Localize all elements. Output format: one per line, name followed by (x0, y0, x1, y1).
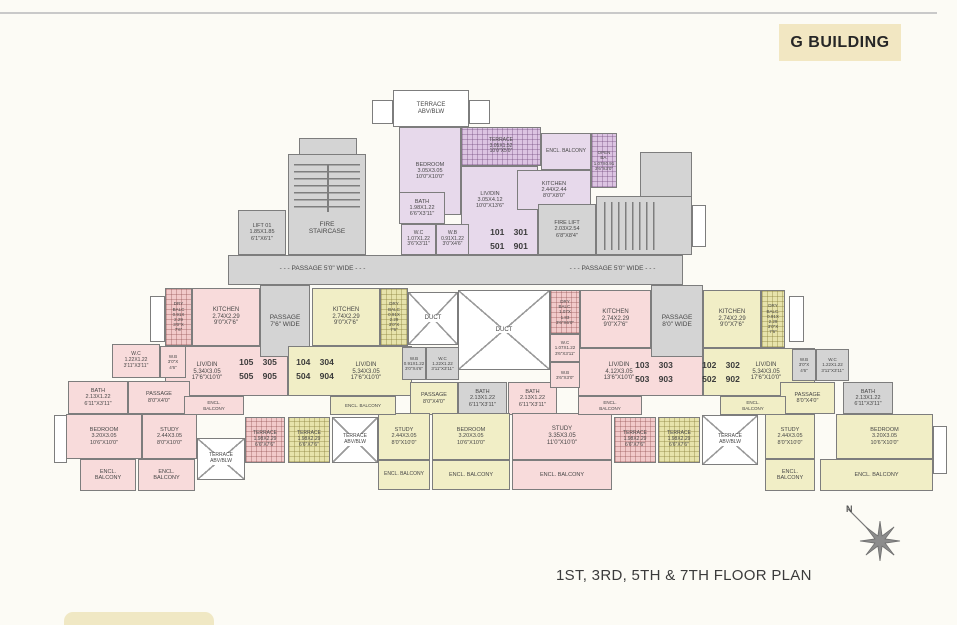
room-label-line: KITCHEN (602, 309, 628, 316)
encl-balcony-104a: ENCL. BALCONY (378, 460, 430, 490)
room-label-line: 17'6"X10'0" (351, 375, 382, 382)
encl-balcony-105-liv: ENCL.BALCONY (184, 396, 244, 415)
ledge-far-left (54, 415, 67, 463)
room-label-line: 8'0"X8'0" (543, 193, 565, 199)
room-label-line: 8'0"X4'0" (148, 398, 170, 404)
room-label-line: KITCHEN (213, 307, 239, 314)
bath-105: BATH2.13X1.226'11"X3'11" (68, 381, 128, 414)
room-label-line: DUCT (424, 315, 443, 322)
room-label-line: 9'0"X7'6" (334, 320, 358, 327)
terrace-102: TERRACE1.98X2.296'6"X7'6" (658, 417, 700, 463)
room-label-line: 3'6"X3'0" (556, 375, 574, 380)
lift-01: LIFT 011.85X1.856'1"X6'1" (238, 210, 286, 255)
fire-lift: FIRE LIFT2.03X2.546'8"X8'4" (538, 204, 596, 255)
room-label-line: 6'6"X7'6" (625, 443, 645, 449)
wc-103: W.C1.07X1.223'6"X3'11" (550, 334, 580, 362)
passage-104: PASSAGE8'0"X4'0" (410, 382, 458, 415)
bedroom-102: BEDROOM3.20X3.0510'6"X10'0" (836, 414, 933, 459)
stair-right-steps (604, 202, 658, 250)
room-label-line: 501 901 (490, 240, 528, 254)
room-label-line: TERRACE (417, 102, 446, 109)
room-label-line: - - - PASSAGE 5'0" WIDE - - - (570, 265, 656, 272)
passage-label-right: - - - PASSAGE 5'0" WIDE - - - (540, 259, 685, 279)
room-label-line: ENCL. BALCONY (345, 403, 381, 408)
dry-balcony-104: DRYBALC0.91X2.293'0"X7'6" (380, 288, 408, 346)
encl-balcony-102b: ENCL. BALCONY (820, 459, 933, 491)
room-label-line: 5.34X3.05 (193, 369, 220, 376)
encl-balcony-105a: ENCL.BALCONY (80, 459, 136, 491)
room-label-line: 2.74X2.29 (332, 314, 359, 321)
room-label-line: BALCONY (203, 406, 225, 411)
bottom-left-decorative-shape (64, 612, 214, 625)
kitchen-104: KITCHEN2.74X2.299'0"X7'6" (312, 288, 380, 346)
room-label-line: 8'0" WIDE (662, 321, 692, 328)
room-label-line: ENCL. BALCONY (384, 472, 424, 478)
encl-balcony-101: ENCL. BALCONY (541, 133, 591, 170)
room-label-line: 6'6"X7'6" (255, 443, 275, 449)
room-label-line: 503 903 (635, 373, 673, 387)
room-label-line: 10'0"X10'0" (416, 174, 444, 180)
room-label-line: STUDY (552, 426, 572, 433)
room-label-line: 3'11"X3'11" (431, 366, 453, 371)
terrace-abv-right: TERRACEABV/BLW (702, 415, 758, 465)
terrace-abv-left2: TERRACEABV/BLW (332, 417, 378, 463)
room-label-line: BALCONY (777, 475, 803, 481)
room-label-line: 6'11"X3'11" (519, 402, 546, 408)
room-label-line: ABV/BLW (343, 440, 367, 446)
wb-103: W.B3'6"X3'0" (550, 362, 580, 388)
open-balcony-101: OPENBA.1.07X0.913'6"X3'0" (591, 133, 617, 188)
floor-plan-caption: 1ST, 3RD, 5TH & 7TH FLOOR PLAN (556, 567, 812, 584)
wb-101: W.B0.91X1.223'0"X4'6" (436, 224, 469, 255)
bedroom-105: BEDROOM3.20X3.0510'6"X10'0" (66, 414, 142, 459)
room-label-line: 17'6"X10'0" (192, 375, 223, 382)
wc-102: W.C1.22X1.223'11"X3'11" (816, 349, 849, 381)
room-label-line: 3'6"X3'11" (555, 351, 575, 356)
room-label-line: 7'6" WIDE (270, 321, 300, 328)
room-label-line: 7'6" (175, 327, 182, 332)
ledge-far-right (933, 426, 947, 474)
room-label-line: 5.34X3.05 (352, 369, 379, 376)
room-label-line: ABV/BLW (718, 440, 742, 446)
kitchen-102: KITCHEN2.74X2.299'0"X7'6" (703, 290, 761, 348)
room-label-line: DUCT (495, 327, 514, 334)
duct-left: DUCT (408, 292, 458, 345)
room-label-line: PASSAGE (662, 314, 693, 321)
room-label-line: LIV/DIN (755, 362, 776, 369)
terrace-103: TERRACE1.98X2.296'6"X7'6" (614, 417, 656, 463)
room-label-line: 8'0"X4'0" (423, 399, 445, 405)
room-label-line: 5.34X3.05 (752, 369, 779, 376)
room-label-line: 101 301 (490, 226, 528, 240)
room-label-line: 3'11"X3'11" (821, 368, 843, 373)
wc-105: W.C1.22X1.223'11"X3'11" (112, 344, 160, 378)
room-label-line: LIV/DIN (608, 362, 629, 369)
room-label-line: 3.35X3.05 (548, 433, 575, 440)
unit-numbers-102: 102 302502 902 (696, 356, 746, 390)
encl-balcony-102a: ENCL.BALCONY (765, 459, 815, 491)
room-label-line: 2.74X2.29 (718, 316, 745, 323)
room-label-line: ENCL. BALCONY (540, 472, 584, 478)
room-label-line: 3'11"X3'11" (124, 364, 149, 370)
ledge-mid-right (789, 296, 804, 342)
room-label-line: 505 905 (239, 370, 277, 384)
ledge-top-left (372, 100, 393, 124)
terrace-abv-left1: TERRACEABV/BLW (197, 438, 245, 480)
dry-balcony-103: DRYBALC.1.07X1.833'6"X6'0" (550, 290, 580, 334)
room-label-line: ENCL. BALCONY (449, 472, 493, 478)
room-label-line: 6'6"X7'6" (299, 443, 319, 449)
room-label-line: 8'0"X4'0" (797, 398, 819, 404)
room-label-line: 10'0"X5'0" (490, 149, 513, 155)
room-label-line: 7'6" (390, 327, 397, 332)
room-label-line: 11'0"X10'0" (547, 440, 577, 447)
room-label-line: 504 904 (296, 370, 334, 384)
room-label-line: 3'0"X4'6" (443, 242, 463, 248)
room-label-line: 6'1"X6'1" (251, 236, 273, 242)
room-label-line: 2.74X2.29 (602, 316, 629, 323)
floor-plan: TERRACEABV/BLWBEDROOM3.05X3.0510'0"X10'0… (0, 0, 957, 625)
room-label-line: ABV/BLW (418, 109, 444, 116)
ledge-top-right (469, 100, 490, 124)
stair-left-steps (294, 164, 360, 212)
kitchen-103: KITCHEN2.74X2.299'0"X7'6" (580, 290, 651, 348)
room-label-line: 6'6"X3'11" (410, 211, 435, 217)
room-label-line: STAIRCASE (309, 228, 345, 235)
room-label-line: KITCHEN (719, 309, 745, 316)
wc-101: W.C1.07X1.223'6"X3'11" (401, 224, 436, 255)
room-label-line: BALCONY (153, 475, 179, 481)
bath-102: BATH2.13X1.226'11"X3'11" (843, 382, 893, 414)
duct-right: DUCT (458, 290, 550, 370)
terrace-101: TERRACE3.05X1.5210'0"X5'0" (461, 127, 541, 166)
room-label-line: 8'0"X10'0" (392, 440, 417, 446)
room-label-line: PASSAGE (270, 314, 301, 321)
fire-staircase-label: FIRESTAIRCASE (294, 215, 360, 241)
room-label-line: 6'11"X3'11" (854, 401, 881, 407)
encl-balcony-105b: ENCL.BALCONY (138, 459, 195, 491)
study-102: STUDY2.44X3.058'0"X10'0" (765, 414, 815, 459)
livdin-101-label: LIV/DIN3.05X4.1210'0"X13'6" (461, 180, 519, 220)
room-label-line: 2.74X2.29 (212, 314, 239, 321)
room-label-line: 8'0"X10'0" (778, 440, 803, 446)
ledge-mid-left (150, 296, 165, 342)
room-label-line: 3'6"X6'0" (556, 320, 574, 325)
room-label-line: 3'6"X3'11" (407, 242, 429, 248)
room-label-line: 9'0"X7'6" (720, 322, 744, 329)
room-label-line: 502 902 (702, 373, 740, 387)
ledge-stair-right (692, 205, 706, 247)
stair-right-top (640, 152, 692, 198)
room-label-line: 7'6" (769, 329, 776, 334)
bath-101: BATH1.98X1.226'6"X3'11" (399, 192, 445, 224)
compass-north-label: N (846, 504, 853, 514)
room-label-line: 103 303 (635, 359, 673, 373)
unit-numbers-103: 103 303503 903 (628, 356, 680, 390)
room-label-line: BALCONY (742, 406, 764, 411)
room-label-line: 6'6"X7'6" (669, 443, 689, 449)
room-label-line: - - - PASSAGE 5'0" WIDE - - - (280, 265, 366, 272)
room-label-line: LIV/DIN (196, 362, 217, 369)
room-label-line: BALCONY (599, 406, 621, 411)
unit-numbers-105: 105 305505 905 (232, 352, 284, 388)
study-105: STUDY2.44X3.058'0"X10'0" (142, 414, 197, 459)
room-label-line: 105 305 (239, 356, 277, 370)
room-label-line: 10'6"X10'0" (457, 440, 485, 446)
room-label-line: 10'0"X13'6" (476, 203, 504, 209)
passage-label-left: - - - PASSAGE 5'0" WIDE - - - (250, 259, 395, 279)
room-label-line: 6'8"X8'4" (556, 233, 578, 239)
encl-balcony-103a: ENCL. BALCONY (512, 460, 612, 490)
room-label-line: 8'0"X10'0" (157, 440, 182, 446)
room-label-line: 102 302 (702, 359, 740, 373)
room-label-line: LIV/DIN (355, 362, 376, 369)
room-label-line: 6'11"X3'11" (469, 402, 496, 408)
unit-numbers-104: 104 304504 904 (290, 352, 340, 388)
room-label-line: BALCONY (95, 475, 121, 481)
floor-plan-canvas: G BUILDING TERRACEABV/BLWBEDROOM3.05X3.0… (0, 0, 957, 625)
dry-balcony-105: DRYBALC0.91X2.293'0"X7'6" (165, 288, 192, 346)
encl-balcony-104-liv: ENCL. BALCONY (330, 396, 396, 415)
unit-numbers-101: 101 301501 901 (480, 226, 538, 254)
terrace-105: TERRACE1.98X2.296'6"X7'6" (245, 417, 285, 463)
bath-104: BATH2.13X1.226'11"X3'11" (458, 382, 507, 415)
terrace-104: TERRACE1.98X2.296'6"X7'6" (288, 417, 330, 463)
study-104: STUDY2.44X3.058'0"X10'0" (378, 413, 430, 460)
bedroom-104: BEDROOM3.20X3.0510'6"X10'0" (432, 413, 510, 460)
encl-balcony-102-liv: ENCL.BALCONY (720, 396, 786, 415)
kitchen-105: KITCHEN2.74X2.299'0"X7'6" (192, 288, 260, 346)
room-label-line: FIRE (320, 221, 335, 228)
room-label-line: 9'0"X7'6" (604, 322, 628, 329)
room-label-line: ENCL. BALCONY (854, 472, 898, 478)
study-103: STUDY3.35X3.0511'0"X10'0" (512, 413, 612, 460)
dry-balcony-102: DRYBALC.0.91X2.293'0"X7'6" (761, 290, 785, 348)
encl-balcony-103-liv: ENCL.BALCONY (578, 396, 642, 415)
wc-104: W.C1.22X1.223'11"X3'11" (426, 347, 459, 380)
room-label-line: 104 304 (296, 356, 334, 370)
room-label-line: 10'6"X10'0" (90, 440, 118, 446)
room-label-line: 10'6"X10'0" (870, 440, 898, 446)
room-label-line: 17'6"X10'0" (751, 375, 782, 382)
room-label-line: 3'6"X3'0" (595, 166, 613, 171)
room-label-line: KITCHEN (333, 307, 359, 314)
terrace-abv-top: TERRACEABV/BLW (393, 90, 469, 127)
encl-balcony-104b: ENCL. BALCONY (432, 460, 510, 490)
room-label-line: 9'0"X7'6" (214, 320, 238, 327)
passage-v-103: PASSAGE8'0" WIDE (651, 285, 703, 357)
room-label-line: ABV/BLW (209, 459, 233, 465)
room-label-line: ENCL. BALCONY (546, 149, 586, 155)
room-label-line: 6'11"X3'11" (84, 401, 111, 407)
